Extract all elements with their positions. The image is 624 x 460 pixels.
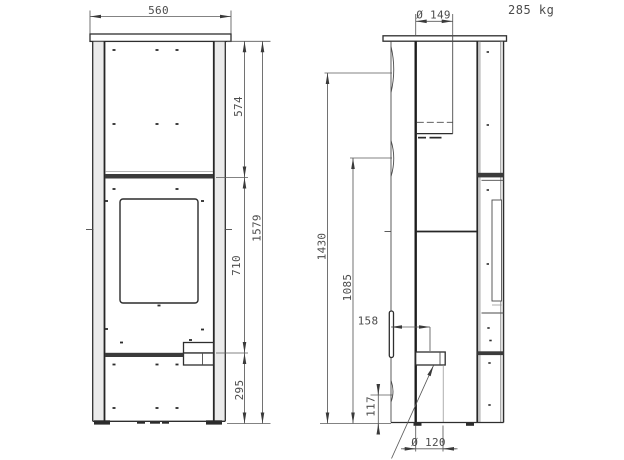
dim-rear-flue-lower: 1085 <box>341 158 392 424</box>
front-view <box>86 34 232 425</box>
dim-flue-diameter: Ø 149 <box>416 9 453 36</box>
dim-front-base: 295 <box>233 353 246 424</box>
dim-front-door: 710 <box>230 178 245 354</box>
rear-slot <box>389 311 393 358</box>
dim-air-diameter: Ø 120 <box>392 366 458 459</box>
dim-air-diameter-label: Ø 120 <box>411 436 446 449</box>
dim-front-width: 560 <box>90 4 231 34</box>
dim-front-door-label: 710 <box>230 255 243 276</box>
front-door-handle <box>184 343 214 366</box>
side-view <box>383 36 507 426</box>
front-top-plate <box>90 34 231 41</box>
side-door-glass-recess <box>492 200 502 301</box>
side-shelf-band <box>477 173 503 178</box>
side-rear-wall <box>389 41 393 422</box>
dim-front-total: 1579 <box>251 41 264 423</box>
dim-front-width-label: 560 <box>148 4 169 17</box>
side-door-profile <box>482 180 504 313</box>
dim-front-base-label: 295 <box>233 380 246 401</box>
dim-front-upper-label: 574 <box>232 96 245 117</box>
front-left-column-shade <box>93 42 104 422</box>
dim-air-offset-label: 158 <box>358 315 379 328</box>
dim-rear-flue-lower-label: 1085 <box>341 274 354 302</box>
stove-dimension-drawing: 560 574 710 295 1579 <box>0 0 624 460</box>
dim-air-height-label: 117 <box>365 396 378 417</box>
front-door-window <box>120 199 198 303</box>
front-door-bottom-band <box>105 353 184 357</box>
front-shelf-band <box>105 174 213 179</box>
front-right-column-shade <box>214 42 225 422</box>
dim-front-total-label: 1579 <box>251 214 264 242</box>
side-top-plate <box>383 36 507 41</box>
dim-rear-flue-upper: 1430 <box>316 73 393 424</box>
side-front-wall <box>477 41 480 422</box>
technical-drawing-sheet: 560 574 710 295 1579 <box>0 0 624 460</box>
side-door-bottom-band <box>477 351 503 355</box>
dim-front-upper: 574 <box>232 41 245 177</box>
dim-air-height: 117 <box>365 384 393 435</box>
weight-label: 285 kg <box>508 3 554 17</box>
dim-rear-flue-upper-label: 1430 <box>316 233 329 261</box>
side-air-intake <box>416 352 446 423</box>
dim-flue-diameter-label: Ø 149 <box>416 9 451 22</box>
